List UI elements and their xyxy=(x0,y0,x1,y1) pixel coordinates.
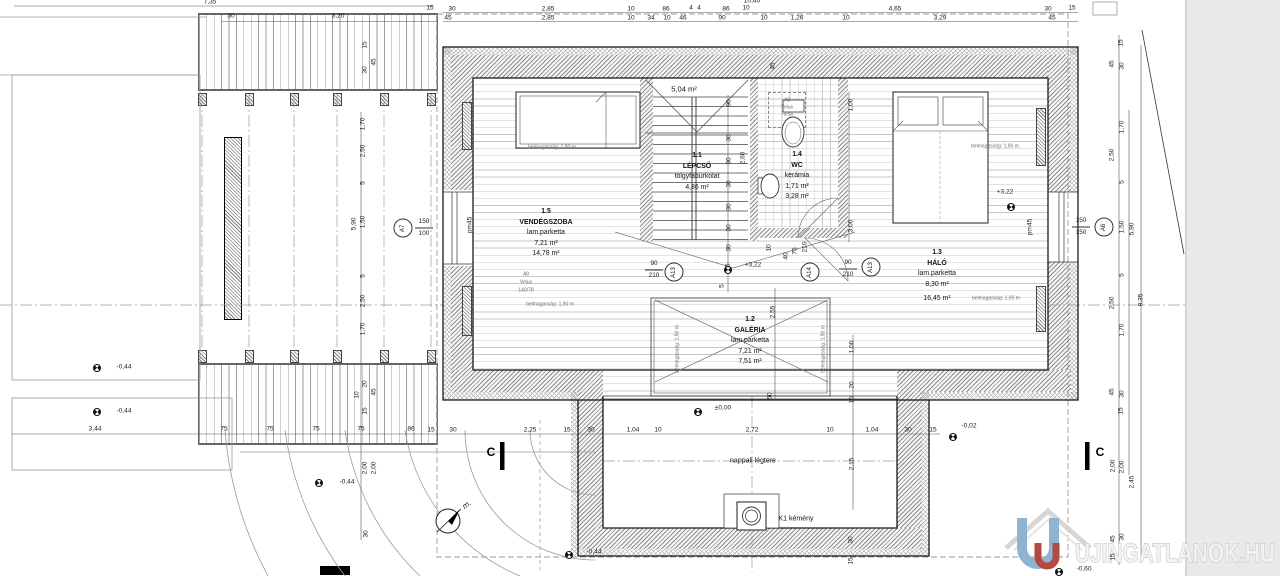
dimension-label: 45 xyxy=(372,388,379,395)
dimension-label: 10 xyxy=(355,391,362,398)
room-name: HÁLÓ xyxy=(887,259,987,270)
dimension-label: 1,70 xyxy=(1120,324,1127,337)
opening-size: 100 xyxy=(419,231,430,237)
dimension-label: 15 xyxy=(363,407,370,414)
dimension-label: 30 xyxy=(449,428,456,435)
opening-mark-label: A13 xyxy=(671,267,677,278)
dimension-label: 75 xyxy=(312,427,319,434)
dimension-label: 10 xyxy=(826,428,833,435)
level-value: -0,44 xyxy=(339,480,354,487)
centerlines xyxy=(0,95,1188,572)
dimension-label: 15 xyxy=(563,428,570,435)
room-label-wc: 1.4 WC kerámia 1,71 m² 3,28 m² xyxy=(759,150,835,203)
dimension-label: 45 xyxy=(771,62,778,69)
dimension-label: 15 xyxy=(426,6,433,13)
level-value: -0,02 xyxy=(961,424,976,431)
roof-area-label: 5,04 m² xyxy=(671,85,696,93)
section-letter: C xyxy=(1096,446,1105,458)
room-area: 7,21 m² xyxy=(496,239,596,250)
dimension-label: 7,35 xyxy=(204,0,217,6)
dimension-label: 15 xyxy=(427,428,434,435)
section-letter: C xyxy=(487,446,496,458)
dimension-label: 2,45 xyxy=(1130,476,1137,489)
bed-double xyxy=(893,92,988,223)
dimension-label: 2,50 xyxy=(361,145,368,158)
dimension-label: 20 xyxy=(363,380,370,387)
opening-mark-label: A7 xyxy=(400,224,406,231)
dimension-label: 10,40 xyxy=(744,0,761,5)
velux-label: A8 xyxy=(784,99,790,104)
dimension-label: 15 xyxy=(1119,407,1126,414)
velux-label: Velux xyxy=(781,106,793,111)
room-area-total: 14,78 m² xyxy=(496,249,596,260)
site-lines xyxy=(0,17,595,576)
dimension-label: 30 xyxy=(1044,7,1051,14)
dimension-label: 50 xyxy=(768,392,775,399)
dimension-label: 30 xyxy=(363,66,370,73)
opening-size-divider xyxy=(1072,227,1090,228)
room-material: lam.parketta xyxy=(700,336,800,347)
headroom-label: belmagasság: 1,90 m xyxy=(676,325,681,373)
headroom-label: belmagasság: 1,90 m xyxy=(822,325,827,373)
room-label-vendegszoba: 1.5 VENDÉGSZOBA lam.parketta 7,21 m² 14,… xyxy=(496,207,596,260)
dimension-label: 2,00 xyxy=(372,462,379,475)
chimney-label: K1 kémény xyxy=(778,516,813,523)
dimension-label: 10 xyxy=(627,7,634,14)
headroom-label: belmagasság: 1,90 m xyxy=(971,145,1019,150)
dimension-label: 1,50 xyxy=(361,216,368,229)
opening-size: 150 xyxy=(1076,218,1087,224)
level-value: +3,22 xyxy=(745,263,762,270)
room-material: lam.parketta xyxy=(887,269,987,280)
dimension-label: 1,00 xyxy=(850,341,857,354)
level-value: -0,60 xyxy=(1076,567,1091,574)
dimension-label: 45 xyxy=(1110,388,1117,395)
opening-size: 90 xyxy=(650,261,657,267)
dimension-label: 45 xyxy=(1111,535,1118,542)
linework-overlay: UJINGATLANOK.HU xyxy=(0,0,1280,576)
opening-mark-a13: A13 xyxy=(665,263,684,282)
dimension-label: 30 xyxy=(727,180,734,187)
opening-size-divider xyxy=(839,269,857,270)
dimension-label: 10 xyxy=(742,6,749,13)
dimension-label: 86 xyxy=(407,427,414,434)
dimension-label: 30 xyxy=(1120,533,1127,540)
dimension-label: 1,04 xyxy=(866,428,879,435)
dimension-label: 30 xyxy=(448,7,455,14)
opening-mark-a6: A6 xyxy=(1095,218,1114,237)
velux-label: Velux xyxy=(520,281,532,286)
room-name: VENDÉGSZOBA xyxy=(496,218,596,229)
dimension-label: 4 xyxy=(697,6,701,13)
dimension-label: 10 xyxy=(627,16,634,23)
dimension-label: 30 xyxy=(727,157,734,164)
dimension-label: 2,00 xyxy=(363,462,370,475)
opening-mark-a7: A7 xyxy=(394,219,413,238)
dimension-label: 30 xyxy=(849,536,856,543)
dimension-label: 20 xyxy=(850,381,857,388)
dimension-label: 1,70 xyxy=(361,118,368,131)
level-value: ±0,00 xyxy=(715,406,731,413)
dimension-label: 2,50 xyxy=(361,295,368,308)
dimension-label: 2,15 xyxy=(850,458,857,471)
headroom-label: belmagasság: 1,90 m xyxy=(972,297,1020,302)
dimension-label: 45 xyxy=(1048,16,1055,23)
opening-size-divider xyxy=(415,228,433,229)
opening-size: 210 xyxy=(649,273,660,279)
opening-size-divider xyxy=(645,270,663,271)
dimension-label: 1,50 xyxy=(1120,221,1127,234)
dimension-label: 30 xyxy=(727,244,734,251)
opening-mark-label: A14 xyxy=(807,267,813,278)
dimension-label: 30 xyxy=(227,14,234,21)
dimension-label: 86 xyxy=(722,7,729,14)
furniture xyxy=(516,92,988,223)
dimension-label: 30 xyxy=(1120,62,1127,69)
dimension-label: 2,00 xyxy=(1111,460,1118,473)
dimension-label: 86 xyxy=(662,7,669,14)
room-area: 8,30 m² xyxy=(887,280,987,291)
velux-label: 78/55 xyxy=(781,113,794,118)
dimension-label: 2,00 xyxy=(1120,461,1127,474)
dimension-label: 30 xyxy=(727,203,734,210)
dimension-label: 10 xyxy=(767,244,774,251)
room-label-galeria: 1.2 GALÉRIA lam.parketta 7,21 m² 7,51 m² xyxy=(700,315,800,368)
dimension-label: 1,04 xyxy=(627,428,640,435)
dimension-label: 1,70 xyxy=(361,323,368,336)
sheet-edge xyxy=(1093,0,1186,576)
dimension-label: 8,35 xyxy=(1139,294,1146,307)
level-value: -0,44 xyxy=(116,365,131,372)
room-name: GALÉRIA xyxy=(700,326,800,337)
dimension-label: 5 xyxy=(1120,180,1127,184)
watermark: UJINGATLANOK.HU xyxy=(1006,511,1275,568)
dimension-label: 1,26 xyxy=(791,16,804,23)
section-marks xyxy=(500,442,1090,470)
dimension-label: 10 xyxy=(654,428,661,435)
dimension-label: 5 xyxy=(1120,273,1127,277)
velux-label: A8 xyxy=(523,273,529,278)
room-number: 1.5 xyxy=(496,207,596,218)
bed-guest xyxy=(516,92,640,148)
dimension-label: 30 xyxy=(587,428,594,435)
room-number: 1.3 xyxy=(887,248,987,259)
velux-label: 140/78 xyxy=(518,289,533,294)
dimension-label: 15 xyxy=(929,428,936,435)
dimension-label: 3,20 xyxy=(332,14,345,21)
room-name: WC xyxy=(759,161,835,172)
dimension-label: 90 xyxy=(727,99,734,106)
dimension-label: 75 xyxy=(266,427,273,434)
room-material: kerámia xyxy=(759,171,835,182)
dimension-label: 30 xyxy=(727,224,734,231)
dimension-label: 46 xyxy=(679,16,686,23)
level-value: -0,44 xyxy=(116,409,131,416)
dimension-label: 30 xyxy=(364,530,371,537)
opening-mark-a13: A13 xyxy=(862,258,881,277)
dimension-label: 2,60 xyxy=(741,152,748,165)
dimension-label: 2,85 xyxy=(542,16,555,23)
dimension-label: 15 xyxy=(1111,553,1118,560)
opening-size: 210 xyxy=(843,272,854,278)
dimension-label: 15 xyxy=(1068,6,1075,13)
dimension-label: 30 xyxy=(727,134,734,141)
parapet-label: pm45 xyxy=(468,217,475,234)
room-material: lam.parketta xyxy=(496,228,596,239)
dimension-label: 90 xyxy=(718,16,725,23)
dimension-label: 5 xyxy=(361,181,368,185)
dimension-label: 10 xyxy=(760,16,767,23)
dimension-label: 2,85 xyxy=(542,7,555,14)
room-number: 1.2 xyxy=(700,315,800,326)
dimension-label: 30 xyxy=(1120,390,1127,397)
dimension-label: 34 xyxy=(647,16,654,23)
dimension-label: 30 xyxy=(904,428,911,435)
dimension-label: 15 xyxy=(849,557,856,564)
dimension-label: 5 xyxy=(720,284,727,288)
dimension-label: 210 xyxy=(803,241,810,252)
headroom-label: belmagasság: 1,90 m xyxy=(528,146,576,151)
room-area: 1,71 m² xyxy=(759,182,835,193)
level-value: +3,22 xyxy=(997,190,1014,197)
dimension-label: 2,72 xyxy=(746,428,759,435)
opening-mark-label: A13 xyxy=(868,262,874,273)
opening-size: 150 xyxy=(419,219,430,225)
parapet-label: pm45 xyxy=(1028,219,1035,236)
dimension-label: 45 xyxy=(1110,60,1117,67)
dimension-label: 15 xyxy=(1119,39,1126,46)
dimension-label: 3,29 xyxy=(934,16,947,23)
opening-mark-a14: A14 xyxy=(801,263,820,282)
watermark-text: UJINGATLANOK.HU xyxy=(1075,538,1275,568)
dimension-label: 45 xyxy=(444,16,451,23)
dimension-label: 3,00 xyxy=(849,220,856,233)
dimension-label: 1,70 xyxy=(1120,121,1127,134)
dimension-label: 5 xyxy=(361,274,368,278)
opening-size: 150 xyxy=(1076,230,1087,236)
dimension-label: 5,90 xyxy=(1130,223,1137,236)
dimension-label: 10 xyxy=(850,396,857,403)
dimension-label: 3,44 xyxy=(89,427,102,434)
chimney xyxy=(724,494,779,530)
opening-mark-label: A6 xyxy=(1101,223,1107,230)
dimension-label: 10 xyxy=(842,16,849,23)
north-arrow xyxy=(436,509,461,533)
dimension-label: 4 xyxy=(689,6,693,13)
dimension-label: 15 xyxy=(363,41,370,48)
opening-size: 90 xyxy=(844,260,851,266)
dimension-label: 1,00 xyxy=(849,99,856,112)
dimension-label: 2,25 xyxy=(524,428,537,435)
room-area: 7,21 m² xyxy=(700,347,800,358)
dimension-label: 2,50 xyxy=(1110,297,1117,310)
room-area-total: 7,51 m² xyxy=(700,357,800,368)
dimension-label: 5,90 xyxy=(352,218,359,231)
dimension-label: 45 xyxy=(372,58,379,65)
room-area-total: 3,28 m² xyxy=(759,192,835,203)
dimension-label: 2,50 xyxy=(1110,149,1117,162)
dimension-label: 75 xyxy=(357,427,364,434)
dimension-label: 75 xyxy=(793,247,800,254)
level-value: -0,44 xyxy=(586,550,601,557)
floor-plan-canvas: UJINGATLANOK.HU 1.5 VENDÉGSZOBA lam.park… xyxy=(0,0,1280,576)
living-void-label: nappali légtere xyxy=(730,458,776,465)
dimension-label: 2,55 xyxy=(771,306,778,319)
dimension-label: 75 xyxy=(220,427,227,434)
headroom-label: belmagasság: 1,90 m xyxy=(526,303,574,308)
dimension-label: 10 xyxy=(663,16,670,23)
room-number: 1.4 xyxy=(759,150,835,161)
dimension-label: 40 xyxy=(784,252,791,259)
dimension-label: 4,65 xyxy=(889,7,902,14)
toilet xyxy=(782,117,804,147)
